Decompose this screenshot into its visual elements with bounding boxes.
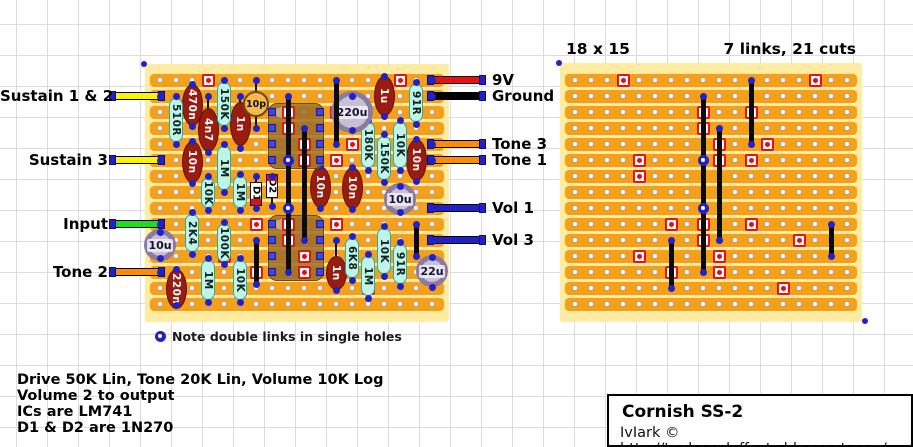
strip-hole xyxy=(588,221,594,227)
strip-hole xyxy=(269,285,275,291)
strip-hole xyxy=(413,285,419,291)
trace-cut-marker xyxy=(713,266,726,279)
strip-hole xyxy=(668,157,674,163)
strip-hole xyxy=(317,77,323,83)
strip-hole xyxy=(844,189,850,195)
strip-hole xyxy=(780,269,786,275)
solder-dot xyxy=(301,125,308,132)
strip-hole xyxy=(317,285,323,291)
strip-hole xyxy=(237,237,243,243)
strip-hole xyxy=(812,125,818,131)
resistor: 10K xyxy=(233,260,247,300)
trace-cut-marker xyxy=(777,282,790,295)
strip-hole xyxy=(572,173,578,179)
strip-hole xyxy=(844,93,850,99)
strip-hole xyxy=(333,301,339,307)
strip-hole xyxy=(828,205,834,211)
strip-hole xyxy=(636,125,642,131)
strip-hole xyxy=(604,285,610,291)
strip-hole xyxy=(780,205,786,211)
strip-hole xyxy=(189,301,195,307)
strip-hole xyxy=(157,173,163,179)
strip-hole xyxy=(157,205,163,211)
strip-hole xyxy=(317,301,323,307)
resistor: 10K xyxy=(201,178,215,208)
solder-dot xyxy=(828,221,835,228)
strip-hole xyxy=(828,77,834,83)
strip-hole xyxy=(652,301,658,307)
solder-dot xyxy=(189,81,196,88)
ic-pin xyxy=(316,236,324,244)
jumper-link-wire xyxy=(669,238,674,291)
film-capacitor: 1n xyxy=(326,256,347,290)
trace-cut-marker xyxy=(394,74,407,87)
solder-dot xyxy=(429,77,436,84)
strip-hole xyxy=(588,93,594,99)
strip-hole xyxy=(764,253,770,259)
ic-pin xyxy=(268,252,276,260)
strip-hole xyxy=(157,189,163,195)
resistor: 100K xyxy=(217,224,231,262)
resistor-label: 180K xyxy=(362,129,374,161)
strip-hole xyxy=(572,205,578,211)
strip-hole xyxy=(828,141,834,147)
strip-hole xyxy=(684,77,690,83)
strip-hole xyxy=(173,157,179,163)
solder-dot xyxy=(285,269,292,276)
strip-hole xyxy=(796,157,802,163)
strip-hole xyxy=(205,221,211,227)
wire-label: Tone 1 xyxy=(492,151,547,169)
strip-hole xyxy=(780,93,786,99)
solder-dot xyxy=(429,284,436,291)
strip-hole xyxy=(732,109,738,115)
strip-hole xyxy=(636,221,642,227)
offboard-wire xyxy=(430,140,483,148)
film-capacitor-label: 4n7 xyxy=(202,118,214,142)
solder-dot xyxy=(253,205,260,212)
strip-hole xyxy=(844,221,850,227)
strip-hole xyxy=(748,189,754,195)
strip-hole xyxy=(652,285,658,291)
strip-hole xyxy=(668,93,674,99)
resistor-label: 6K8 xyxy=(346,246,358,270)
strip-hole xyxy=(189,285,195,291)
solder-dot xyxy=(429,254,436,261)
ic-pin xyxy=(316,220,324,228)
strip-hole xyxy=(429,189,435,195)
strip-hole xyxy=(764,269,770,275)
strip-hole xyxy=(668,77,674,83)
ic-pin xyxy=(316,268,324,276)
resistor-label: 510R xyxy=(170,104,182,136)
resistor: 10K xyxy=(377,228,391,274)
resistor: 1M xyxy=(201,260,215,300)
strip-hole xyxy=(748,173,754,179)
strip-hole xyxy=(828,125,834,131)
double-links-note: Note double links in single holes xyxy=(172,329,402,344)
strip-hole xyxy=(572,253,578,259)
solder-dot xyxy=(716,237,723,244)
credit-line: IvIark © http://tagboardeffects.blogspot… xyxy=(620,425,911,447)
strip-hole xyxy=(684,189,690,195)
film-capacitor-label: 10n xyxy=(346,176,358,200)
solder-dot xyxy=(173,93,180,100)
strip-hole xyxy=(844,125,850,131)
strip-hole xyxy=(604,157,610,163)
solder-dot xyxy=(429,141,436,148)
strip-hole xyxy=(253,141,259,147)
solder-dot xyxy=(157,229,164,236)
strip-hole xyxy=(604,237,610,243)
strip-hole xyxy=(844,205,850,211)
strip-hole xyxy=(636,93,642,99)
strip-hole xyxy=(716,93,722,99)
strip-hole xyxy=(732,221,738,227)
wire-label: Sustain 1 & 2 xyxy=(0,87,108,105)
solder-dot xyxy=(556,60,562,66)
solder-dot xyxy=(429,205,436,212)
resistor-label: 91R xyxy=(394,252,406,276)
solder-dot xyxy=(748,77,755,84)
resistor: 2K4 xyxy=(185,214,199,252)
offboard-wire xyxy=(430,236,483,244)
wire-end-cap xyxy=(479,155,486,165)
strip-hole xyxy=(620,221,626,227)
strip-hole xyxy=(333,205,339,211)
solder-dot xyxy=(413,221,420,228)
trace-cut-marker xyxy=(745,154,758,167)
strip-hole xyxy=(668,189,674,195)
strip-hole xyxy=(652,253,658,259)
resistor-label: 10K xyxy=(378,239,390,263)
offboard-wire xyxy=(112,156,162,164)
solder-dot xyxy=(189,180,196,187)
strip-hole xyxy=(716,109,722,115)
strip-hole xyxy=(828,109,834,115)
ic-pin xyxy=(316,124,324,132)
strip-hole xyxy=(764,93,770,99)
solder-dot xyxy=(365,251,372,258)
solder-dot xyxy=(221,125,228,132)
solder-dot xyxy=(716,125,723,132)
wire-end-cap xyxy=(479,203,486,213)
solder-dot xyxy=(253,281,260,288)
strip-hole xyxy=(748,253,754,259)
strip-hole xyxy=(572,157,578,163)
trace-cut-marker xyxy=(809,74,822,87)
solder-dot xyxy=(237,207,244,214)
strip-hole xyxy=(684,93,690,99)
strip-hole xyxy=(173,253,179,259)
solder-dot xyxy=(429,237,436,244)
film-capacitor-label: 220n xyxy=(170,273,182,304)
strip-hole xyxy=(221,269,227,275)
strip-hole xyxy=(748,205,754,211)
strip-hole xyxy=(652,205,658,211)
solder-dot xyxy=(397,117,404,124)
strip-hole xyxy=(668,141,674,147)
solder-dot xyxy=(253,173,260,180)
resistor-label: 1M xyxy=(234,183,246,202)
film-capacitor: 10n xyxy=(182,141,203,183)
strip-hole xyxy=(588,77,594,83)
strip-hole xyxy=(812,301,818,307)
strip-hole xyxy=(397,109,403,115)
ic-pin xyxy=(316,108,324,116)
strip-hole xyxy=(604,269,610,275)
strip-hole xyxy=(429,173,435,179)
strip-hole xyxy=(620,93,626,99)
strip-hole xyxy=(588,285,594,291)
trace-cut-marker xyxy=(617,74,630,87)
strip-hole xyxy=(572,109,578,115)
strip-hole xyxy=(780,221,786,227)
strip-hole xyxy=(780,237,786,243)
strip-hole xyxy=(572,77,578,83)
offboard-wire xyxy=(112,92,162,100)
strip-hole xyxy=(748,301,754,307)
trace-cut-marker xyxy=(250,218,263,231)
solder-dot xyxy=(157,255,164,262)
strip-hole xyxy=(732,93,738,99)
strip-hole xyxy=(301,301,307,307)
solder-dot xyxy=(269,173,276,180)
strip-hole xyxy=(796,205,802,211)
strip-hole xyxy=(397,301,403,307)
strip-hole xyxy=(157,77,163,83)
solder-dot xyxy=(828,253,835,260)
strip-hole xyxy=(636,77,642,83)
resistor-label: 10K xyxy=(202,181,214,205)
electrolytic-capacitor-label: 10u xyxy=(147,239,172,252)
strip-hole xyxy=(269,301,275,307)
solder-dot xyxy=(237,255,244,262)
strip-hole xyxy=(253,157,259,163)
trace-cut-marker xyxy=(633,250,646,263)
strip-hole xyxy=(732,301,738,307)
strip-hole xyxy=(700,301,706,307)
offboard-wire xyxy=(112,268,162,276)
solder-dot xyxy=(429,93,436,100)
trace-cut-marker xyxy=(633,170,646,183)
solder-dot xyxy=(205,299,212,306)
strip-hole xyxy=(620,173,626,179)
strip-hole xyxy=(812,269,818,275)
strip-hole xyxy=(668,109,674,115)
offboard-wire xyxy=(430,204,483,212)
trace-cut-marker xyxy=(298,266,311,279)
strip-hole xyxy=(828,157,834,163)
solder-dot xyxy=(333,287,340,294)
strip-hole xyxy=(780,125,786,131)
trace-cut-marker xyxy=(298,250,311,263)
solder-dot xyxy=(381,131,388,138)
electrolytic-capacitor-label: 220u xyxy=(336,106,369,119)
film-capacitor-label: 10n xyxy=(314,175,326,199)
strip-hole xyxy=(652,141,658,147)
ic-pin xyxy=(316,156,324,164)
ic-pin xyxy=(316,140,324,148)
offboard-wire xyxy=(430,156,483,164)
resistor: 510R xyxy=(169,98,183,142)
strip-hole xyxy=(604,173,610,179)
wire-label: Input xyxy=(0,215,108,233)
strip-hole xyxy=(684,301,690,307)
strip-hole xyxy=(716,77,722,83)
solder-dot xyxy=(189,138,196,145)
strip-hole xyxy=(333,189,339,195)
resistor-label: 100K xyxy=(218,227,230,259)
strip-hole xyxy=(349,301,355,307)
strip-hole xyxy=(157,141,163,147)
strip-hole xyxy=(365,221,371,227)
strip-hole xyxy=(764,285,770,291)
strip-hole xyxy=(812,205,818,211)
strip-hole xyxy=(572,237,578,243)
resistor: 1M xyxy=(217,146,231,190)
strip-hole xyxy=(604,77,610,83)
resistor: 1M xyxy=(361,256,375,296)
solder-dot xyxy=(333,237,340,244)
trace-cut-marker xyxy=(202,74,215,87)
strip-hole xyxy=(732,189,738,195)
strip-hole xyxy=(429,221,435,227)
ic-pin xyxy=(268,220,276,228)
film-capacitor-label: 1n xyxy=(234,116,246,132)
strip-hole xyxy=(844,285,850,291)
solder-dot xyxy=(253,237,260,244)
title-box: Cornish SS-2 IvIark © http://tagboardeff… xyxy=(607,394,913,447)
strip-hole xyxy=(365,205,371,211)
strip-hole xyxy=(700,285,706,291)
solder-dot xyxy=(748,141,755,148)
solder-dot xyxy=(397,167,404,174)
strip-hole xyxy=(684,285,690,291)
film-capacitor: 10n xyxy=(310,166,331,208)
solder-dot xyxy=(173,141,180,148)
solder-dot xyxy=(221,141,228,148)
strip-hole xyxy=(620,141,626,147)
wire-end-cap xyxy=(479,235,486,245)
solder-dot xyxy=(237,145,244,152)
jumper-link-wire xyxy=(334,78,339,147)
strip-hole xyxy=(828,173,834,179)
strip-hole xyxy=(221,285,227,291)
jumper-link-wire xyxy=(749,78,754,147)
trace-cut-marker xyxy=(330,218,343,231)
strip-hole xyxy=(796,269,802,275)
strip-hole xyxy=(588,269,594,275)
strip-hole xyxy=(684,221,690,227)
solder-dot xyxy=(237,171,244,178)
strip-hole xyxy=(588,301,594,307)
strip-hole xyxy=(429,301,435,307)
strip-hole xyxy=(636,109,642,115)
solder-dot xyxy=(269,203,276,210)
strip-hole xyxy=(764,173,770,179)
solder-dot xyxy=(157,221,164,228)
strip-hole xyxy=(349,77,355,83)
solder-dot xyxy=(397,209,404,216)
solder-dot xyxy=(381,113,388,120)
strip-hole xyxy=(732,237,738,243)
strip-hole xyxy=(604,221,610,227)
solder-dot xyxy=(205,255,212,262)
strip-hole xyxy=(796,93,802,99)
jumper-link-wire xyxy=(701,94,706,163)
strip-hole xyxy=(429,109,435,115)
strip-hole xyxy=(764,189,770,195)
strip-hole xyxy=(652,173,658,179)
strip-hole xyxy=(732,253,738,259)
strip-hole xyxy=(588,205,594,211)
strip-hole xyxy=(285,301,291,307)
resistor-label: 10K xyxy=(234,268,246,292)
strip-hole xyxy=(173,173,179,179)
strip-hole xyxy=(796,285,802,291)
strip-hole xyxy=(684,125,690,131)
strip-hole xyxy=(588,237,594,243)
solder-dot xyxy=(397,239,404,246)
strip-hole xyxy=(748,269,754,275)
strip-hole xyxy=(844,253,850,259)
strip-hole xyxy=(604,125,610,131)
strip-hole xyxy=(684,173,690,179)
solder-dot xyxy=(381,273,388,280)
strip-hole xyxy=(604,301,610,307)
wire-end-cap xyxy=(479,91,486,101)
strip-hole xyxy=(828,93,834,99)
strip-hole xyxy=(636,141,642,147)
trace-cut-marker xyxy=(346,138,359,151)
strip-hole xyxy=(780,77,786,83)
solder-dot xyxy=(349,93,356,100)
strip-hole xyxy=(269,77,275,83)
film-capacitor-label: 10n xyxy=(410,148,422,172)
strip-hole xyxy=(844,269,850,275)
strip-hole xyxy=(748,285,754,291)
strip-hole xyxy=(269,93,275,99)
solder-dot xyxy=(205,93,212,100)
strip-hole xyxy=(620,285,626,291)
jumper-link-wire xyxy=(286,94,291,163)
strip-hole xyxy=(381,285,387,291)
strip-hole xyxy=(812,253,818,259)
solder-dot xyxy=(349,127,356,134)
strip-hole xyxy=(812,109,818,115)
trace-cut-marker xyxy=(761,138,774,151)
strip-hole xyxy=(764,237,770,243)
strip-hole xyxy=(636,301,642,307)
resistor-label: 10K xyxy=(394,133,406,157)
strip-hole xyxy=(636,285,642,291)
info-line-volume: Volume 2 to output xyxy=(17,388,175,404)
film-capacitor: 4n7 xyxy=(198,108,219,152)
trace-cut-marker xyxy=(665,218,678,231)
ceramic-capacitor-label: 10p xyxy=(246,99,266,110)
strip-hole xyxy=(588,189,594,195)
strip-hole xyxy=(317,93,323,99)
strip-hole xyxy=(572,269,578,275)
strip-hole xyxy=(764,301,770,307)
strip-hole xyxy=(764,77,770,83)
solder-dot xyxy=(349,233,356,240)
solder-dot xyxy=(381,179,388,186)
strip-hole xyxy=(844,237,850,243)
trace-cut-marker xyxy=(633,154,646,167)
strip-hole xyxy=(173,189,179,195)
